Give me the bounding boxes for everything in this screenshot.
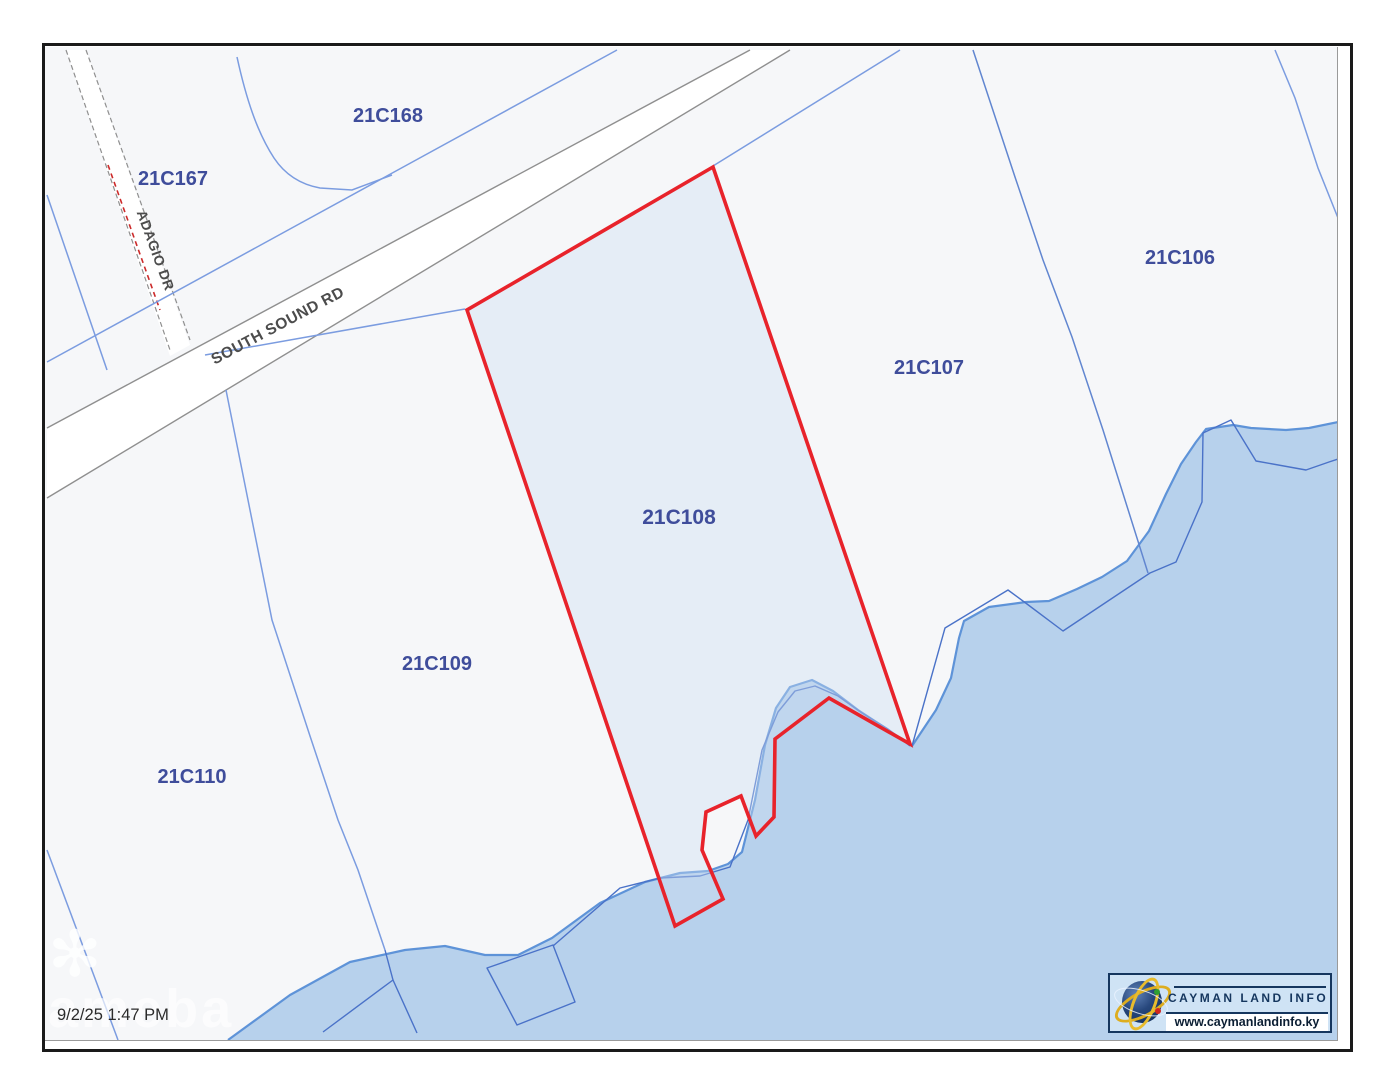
map-export-page: 21C167 21C168 21C106 21C107 21C108 21C10… [0, 0, 1383, 1084]
parcel-label-21c107[interactable]: 21C107 [894, 357, 964, 379]
logo-title: CAYMAN LAND INFO [1168, 991, 1328, 1005]
globe-icon [1118, 977, 1166, 1029]
parcel-label-21c109[interactable]: 21C109 [402, 653, 472, 675]
parcel-label-21c168[interactable]: 21C168 [353, 105, 423, 127]
parcel-label-21c108[interactable]: 21C108 [642, 506, 716, 529]
logo-website-link[interactable]: www.caymanlandinfo.ky [1166, 1012, 1328, 1031]
logo-rule [1174, 986, 1326, 988]
timestamp: 9/2/25 1:47 PM [57, 1006, 169, 1025]
parcel-label-21c110[interactable]: 21C110 [158, 766, 227, 788]
cadastral-map: 21C167 21C168 21C106 21C107 21C108 21C10… [45, 47, 1337, 1040]
parcel-label-21c106[interactable]: 21C106 [1145, 247, 1215, 269]
parcel-label-21c167[interactable]: 21C167 [138, 168, 208, 190]
red-dot-icon [1155, 1008, 1161, 1014]
cayman-land-info-logo: CAYMAN LAND INFO www.caymanlandinfo.ky [1108, 973, 1332, 1033]
green-dot-icon [1154, 989, 1160, 995]
